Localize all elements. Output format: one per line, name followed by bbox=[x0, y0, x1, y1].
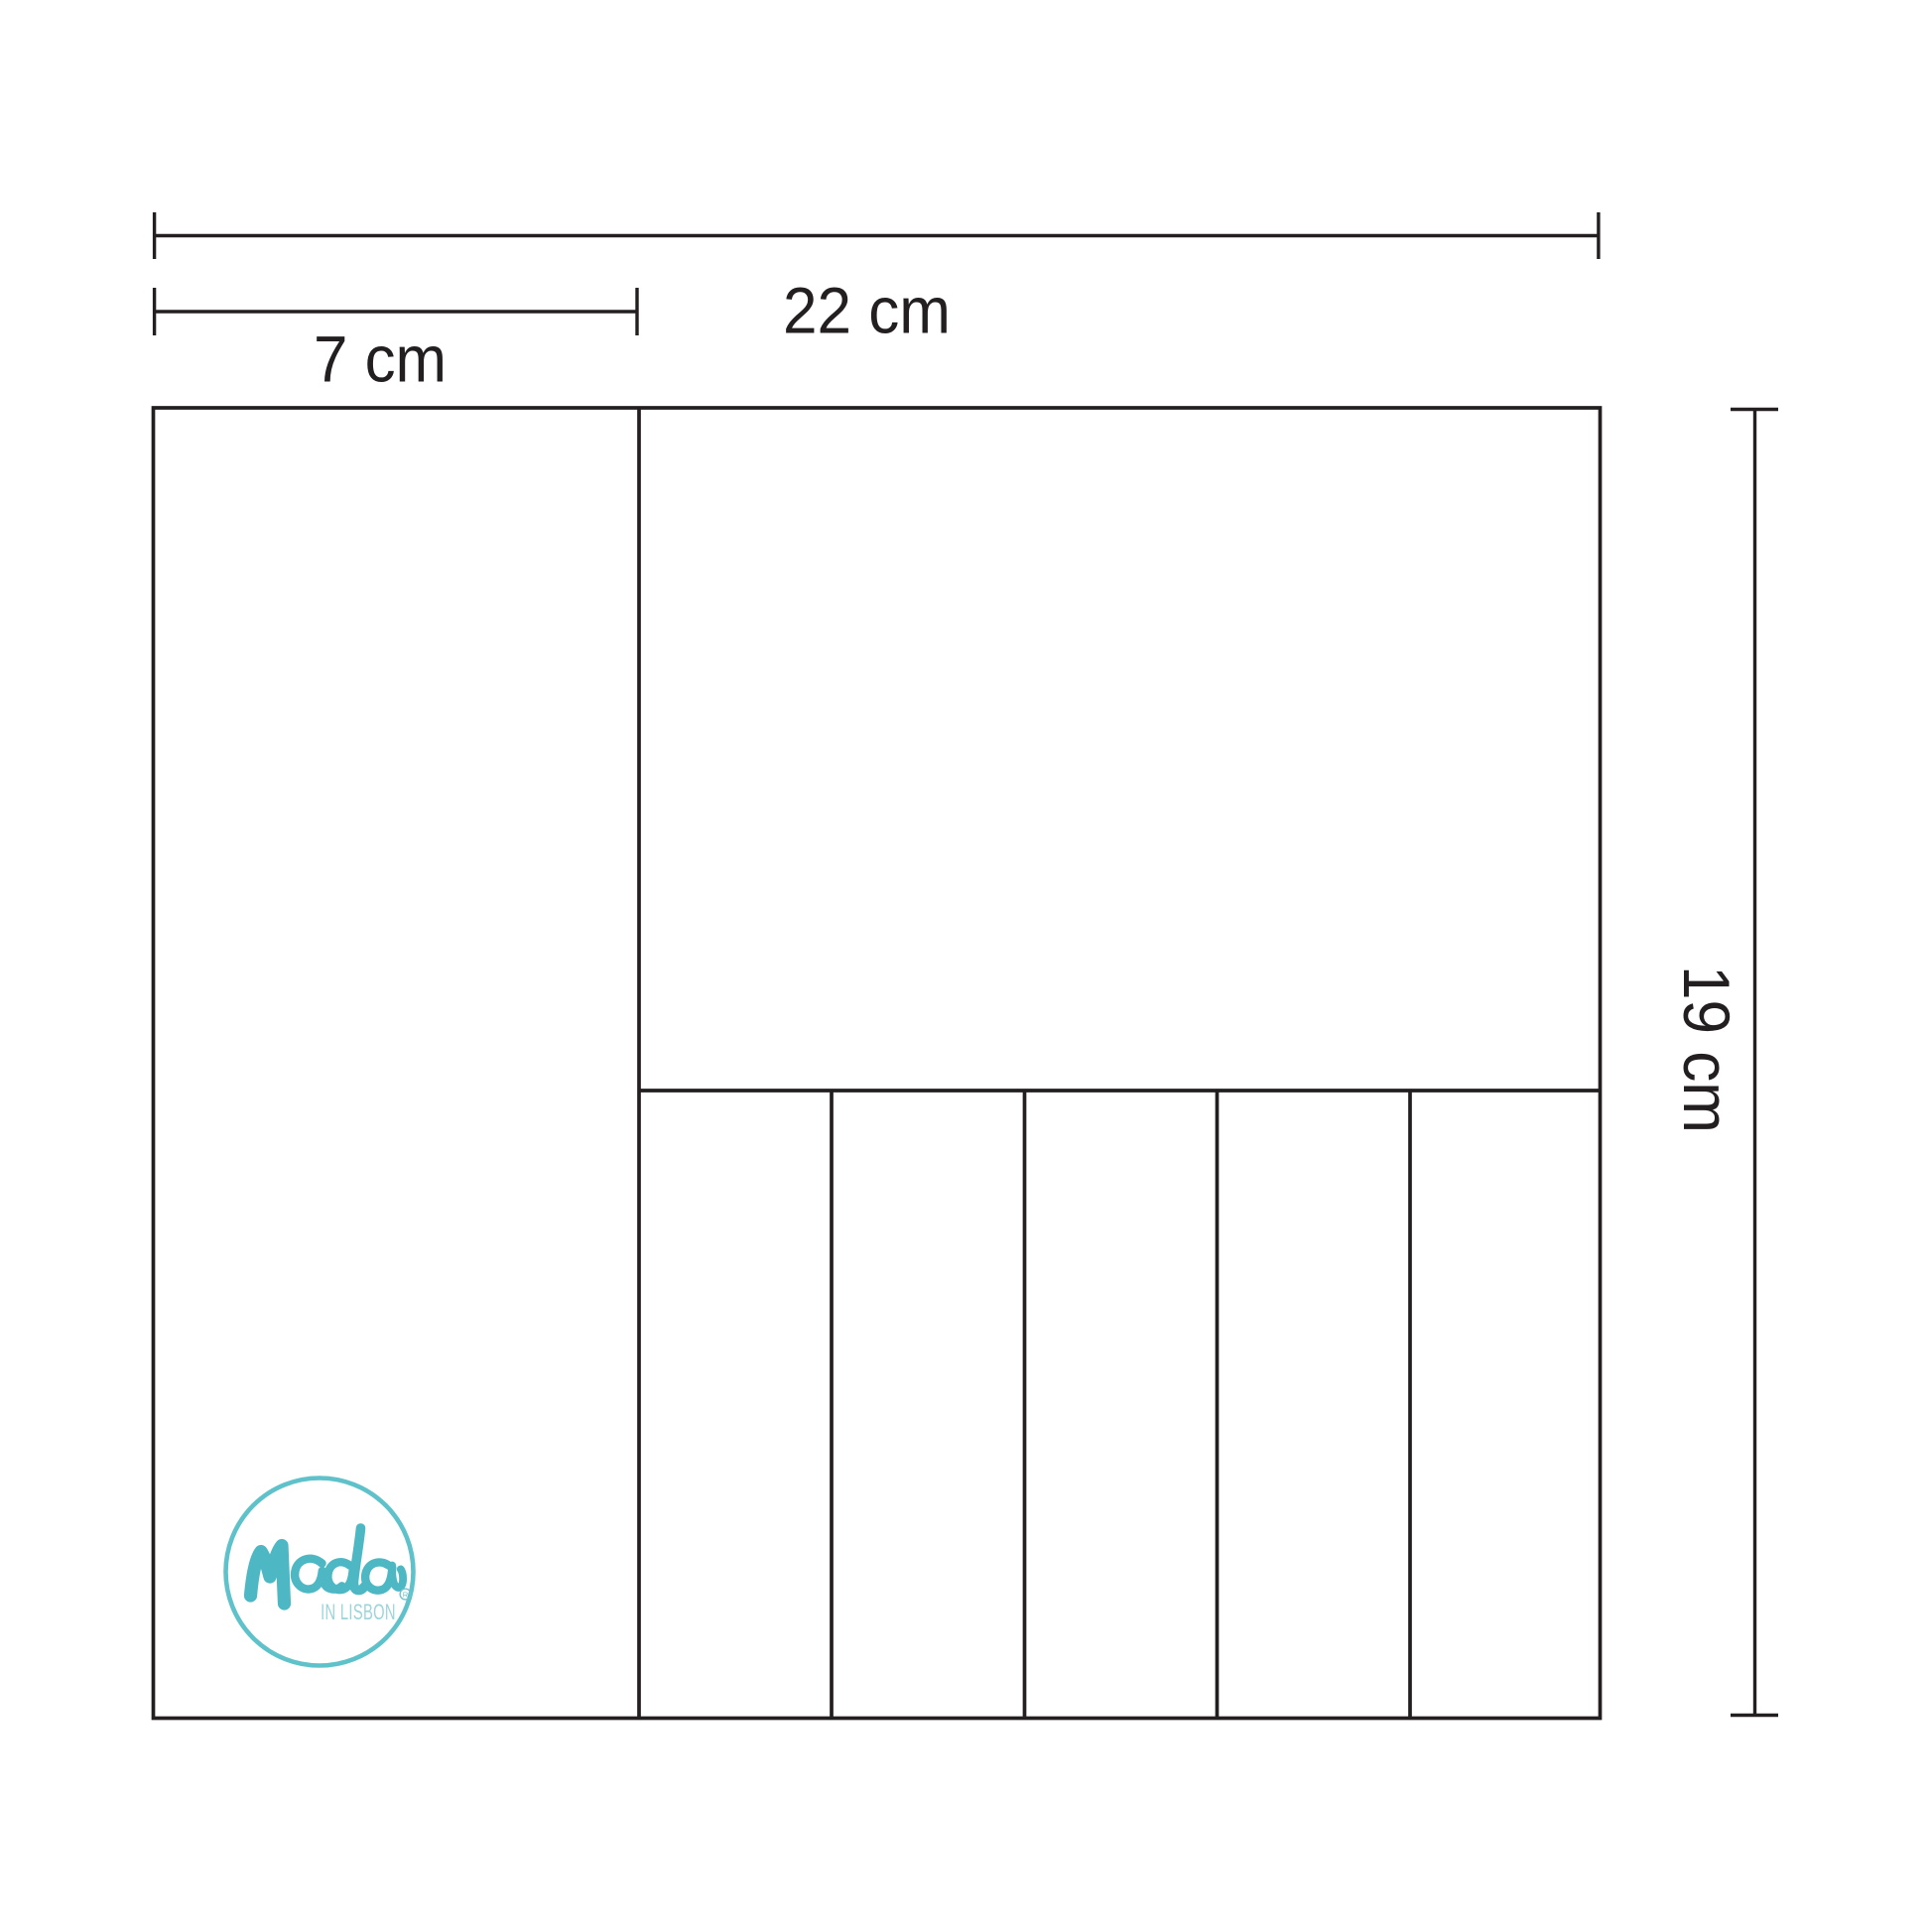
svg-text:7 cm: 7 cm bbox=[314, 322, 447, 396]
svg-text:19 cm: 19 cm bbox=[1670, 966, 1743, 1133]
svg-text:R: R bbox=[403, 1591, 409, 1600]
svg-text:IN LISBON: IN LISBON bbox=[321, 1601, 396, 1625]
svg-text:22 cm: 22 cm bbox=[783, 274, 951, 347]
